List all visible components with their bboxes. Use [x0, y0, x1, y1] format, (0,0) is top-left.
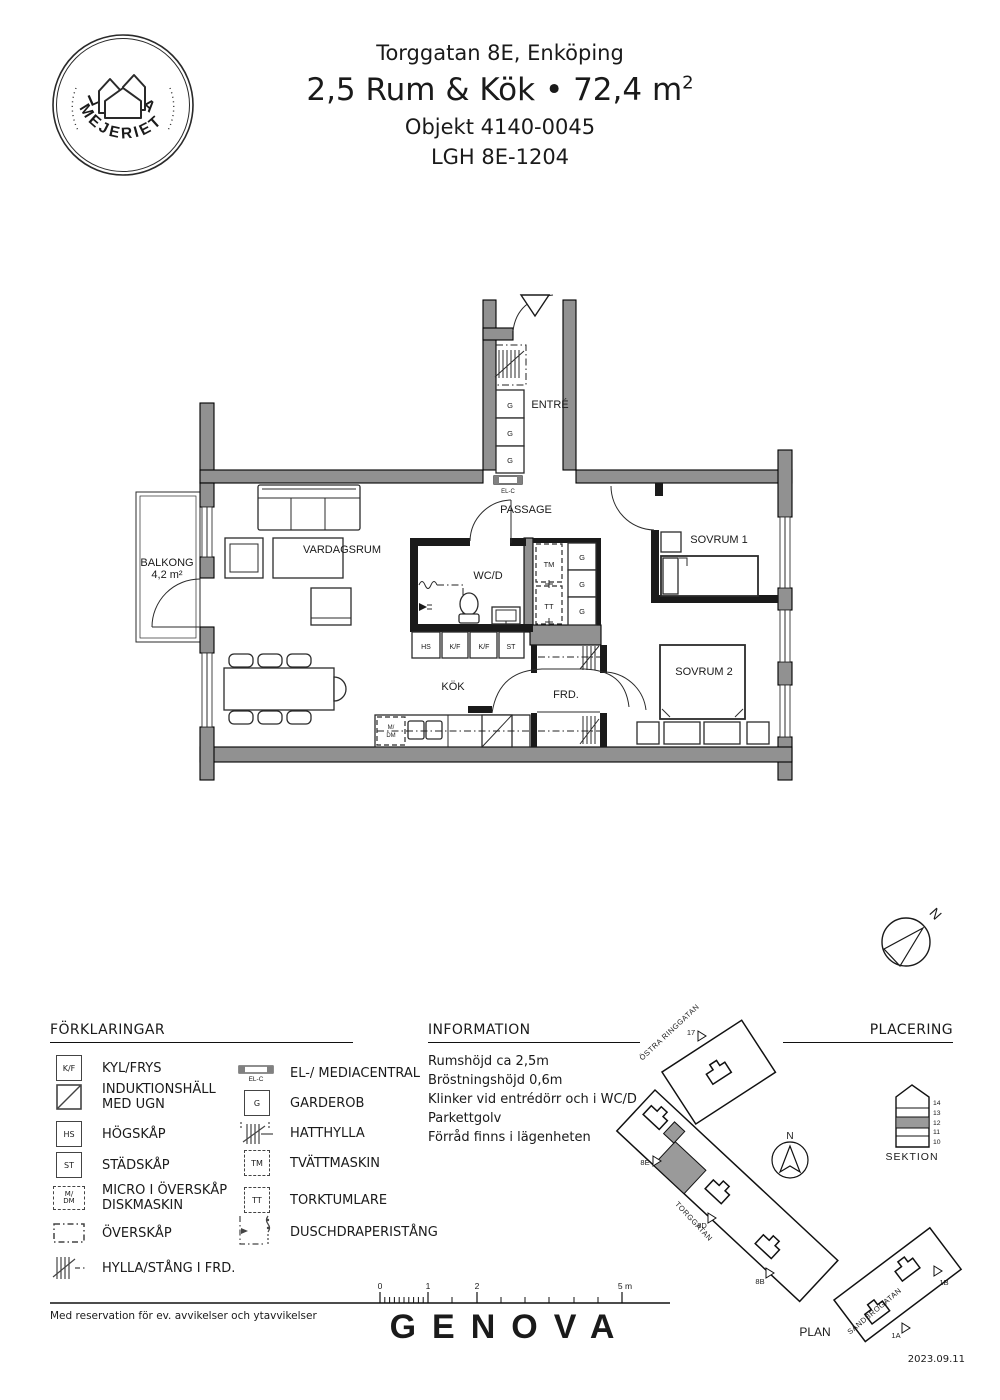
induction-symbol-icon [56, 1084, 82, 1110]
room-label-wcd: WC/D [473, 570, 502, 582]
window-dining [202, 653, 212, 727]
laundry-column [536, 544, 562, 626]
hylla-stang-icon-top [580, 646, 599, 670]
nightstand [661, 532, 681, 552]
sektion-floor-labels: 14 13 12 11 10 [933, 1100, 941, 1146]
room-label-vardagsrum: VARDAGSRUM [303, 544, 381, 556]
shower-head-icon [419, 603, 432, 611]
marker-g: G [579, 607, 585, 616]
marker-elc: EL-C [501, 489, 515, 495]
shaft [530, 625, 601, 645]
sofa [258, 485, 360, 530]
legend-item-duschdraperistang: DUSCHDRAPERISTÅNG [238, 1217, 438, 1247]
disclaimer: Med reservation för ev. avvikelser och y… [50, 1310, 317, 1322]
legend-item-hogskap: HS HÖGSKÅP [50, 1119, 166, 1149]
legend-item-el-mediacentral: EL-C EL-/ MEDIACENTRAL [238, 1058, 420, 1088]
toilet-icon [459, 593, 479, 623]
marker-g: G [507, 429, 513, 438]
info-line: Bröstningshöjd 0,6m [428, 1071, 658, 1090]
room-label-passage: PASSAGE [500, 504, 552, 516]
room-label-sovrum2: SOVRUM 2 [675, 666, 732, 678]
armchair [225, 538, 263, 578]
el-mediacentral [494, 476, 522, 484]
legend: K/F KYL/FRYS INDUKTIONSHÄLLMED UGN HS HÖ… [50, 1048, 430, 1308]
legend-item-garderob: G GARDEROB [238, 1088, 364, 1118]
window-livingroom [202, 507, 212, 557]
svg-text:12: 12 [933, 1120, 941, 1127]
legend-item-tvattmaskin: TM TVÄTTMASKIN [238, 1148, 380, 1178]
date: 2023.09.11 [855, 1354, 965, 1365]
kitchen-counter [375, 715, 530, 747]
information-title: INFORMATION [428, 1022, 640, 1043]
side-table [311, 588, 351, 625]
plan-label: PLAN [799, 1325, 830, 1339]
marker-hs: HS [421, 644, 431, 651]
kf-symbol-icon: K/F [56, 1055, 82, 1081]
information-block: Rumshöjd ca 2,5m Bröstningshöjd 0,6m Kli… [428, 1052, 658, 1147]
site-north-label: N [786, 1131, 793, 1142]
legend-item-stadskap: ST STÄDSKÅP [50, 1150, 170, 1180]
entrance-8b: 8B [755, 1277, 764, 1286]
room-label-entre: ENTRÉ [531, 398, 568, 411]
marker-st: ST [507, 644, 517, 651]
nightstand [637, 722, 659, 744]
entrance-door [513, 295, 553, 331]
svg-text:13: 13 [933, 1110, 941, 1117]
wcd-fittings [419, 500, 520, 624]
entrance-8e: 8E [640, 1158, 649, 1167]
entrance-1a: 1A [891, 1331, 900, 1340]
marker-g: G [507, 401, 513, 410]
svg-text:5 m: 5 m [618, 1281, 632, 1291]
svg-text:10: 10 [933, 1139, 941, 1146]
entrance-17: 17 [687, 1028, 695, 1037]
marker-tm: TM [544, 560, 555, 569]
legend-item-overskap: ÖVERSKÅP [50, 1218, 172, 1248]
livingroom-furniture [224, 485, 360, 724]
marker-m: M/ [388, 725, 395, 731]
marker-g: G [579, 580, 585, 589]
hylla-symbol-icon [51, 1255, 87, 1281]
sektion-title: SEKTION [885, 1151, 938, 1163]
sovrum2-furniture [637, 645, 769, 744]
legend-item-torktumlare: TT TORKTUMLARE [238, 1185, 387, 1215]
window-sovrum2-b [780, 685, 790, 737]
legend-item-micro-diskmaskin: M/DM MICRO I ÖVERSKÅPDISKMASKIN [50, 1183, 227, 1213]
window-sovrum1 [780, 517, 790, 588]
legend-title: FÖRKLARINGAR [50, 1022, 353, 1043]
sink-basin-right [426, 721, 442, 739]
svg-text:2: 2 [475, 1281, 480, 1291]
sektion-diagram: 14 13 12 11 10 SEKTION [885, 1085, 940, 1163]
legend-item-induktionshall: INDUKTIONSHÄLLMED UGN [50, 1082, 216, 1112]
north-compass-icon: N [882, 905, 945, 966]
balkong-area: 4,2 m² [151, 569, 183, 581]
hylla-stang-icon-bottom [580, 716, 599, 744]
tt-symbol-icon: TT [244, 1187, 270, 1213]
site-plan: 17 8E 8D 8B 1A 1B ÖSTRA RINGGATAN TORGGA… [617, 1002, 961, 1341]
sektion-floor12-highlight [896, 1117, 929, 1128]
svg-text:14: 14 [933, 1100, 941, 1107]
tm-symbol-icon: TM [244, 1150, 270, 1176]
marker-kf: K/F [450, 644, 461, 651]
info-line: Förråd finns i lägenheten [428, 1128, 658, 1147]
info-line: Klinker vid entrédörr och i WC/D [428, 1090, 658, 1109]
room-label-sovrum1: SOVRUM 1 [690, 534, 747, 546]
placering-title: PLACERING [783, 1022, 953, 1043]
genova-wordmark: GENOVA [340, 1308, 680, 1347]
site-north-icon: N [772, 1131, 808, 1178]
hatthylla-symbol-icon [239, 1120, 275, 1146]
info-line: Parkettgolv [428, 1109, 658, 1128]
sovrum1-door-arc [611, 486, 654, 530]
st-symbol-icon: ST [56, 1152, 82, 1178]
legend-item-hatthylla: HATTHYLLA [238, 1118, 365, 1148]
g-symbol-icon: G [244, 1090, 270, 1116]
marker-kf: K/F [479, 644, 490, 651]
shower-curtain-icon [419, 582, 437, 589]
pillow [663, 558, 678, 594]
entrance-1b: 1B [939, 1278, 948, 1287]
hs-symbol-icon: HS [56, 1121, 82, 1147]
info-line: Rumshöjd ca 2,5m [428, 1052, 658, 1071]
elc-symbol-icon: EL-C [238, 1063, 276, 1083]
window-sovrum2-a [780, 610, 790, 662]
pillow [704, 722, 740, 744]
room-label-kok: KÖK [441, 681, 465, 693]
dining-table [224, 668, 346, 710]
marker-dm: DM [386, 733, 395, 739]
marker-g: G [507, 456, 513, 465]
marker-tt: TT [544, 602, 554, 611]
nightstand [747, 722, 769, 744]
room-label-balkong: BALKONG [140, 557, 193, 569]
pillow [664, 722, 700, 744]
svg-text:11: 11 [933, 1129, 940, 1136]
entry-hatthylla [495, 345, 526, 385]
north-label: N [926, 905, 945, 923]
sink-basin-left [408, 721, 424, 739]
dusch-symbol-icon [238, 1214, 276, 1250]
room-label-frd: FRD. [553, 689, 579, 701]
floorplan-sheet: Torggatan 8E, Enköping 2,5 Rum & Kök • 7… [0, 0, 1000, 1400]
overskap-symbol-icon [53, 1222, 85, 1244]
marker-g: G [579, 553, 585, 562]
mdm-symbol-icon: M/DM [53, 1186, 85, 1210]
legend-item-hylla-stang: HYLLA/STÅNG I FRD. [50, 1253, 235, 1283]
building-ostra-ringgatan [662, 1020, 775, 1124]
legend-item-kyl-frys: K/F KYL/FRYS [50, 1053, 162, 1083]
sink-icon [492, 607, 520, 624]
svg-text:EL-C: EL-C [249, 1076, 264, 1083]
